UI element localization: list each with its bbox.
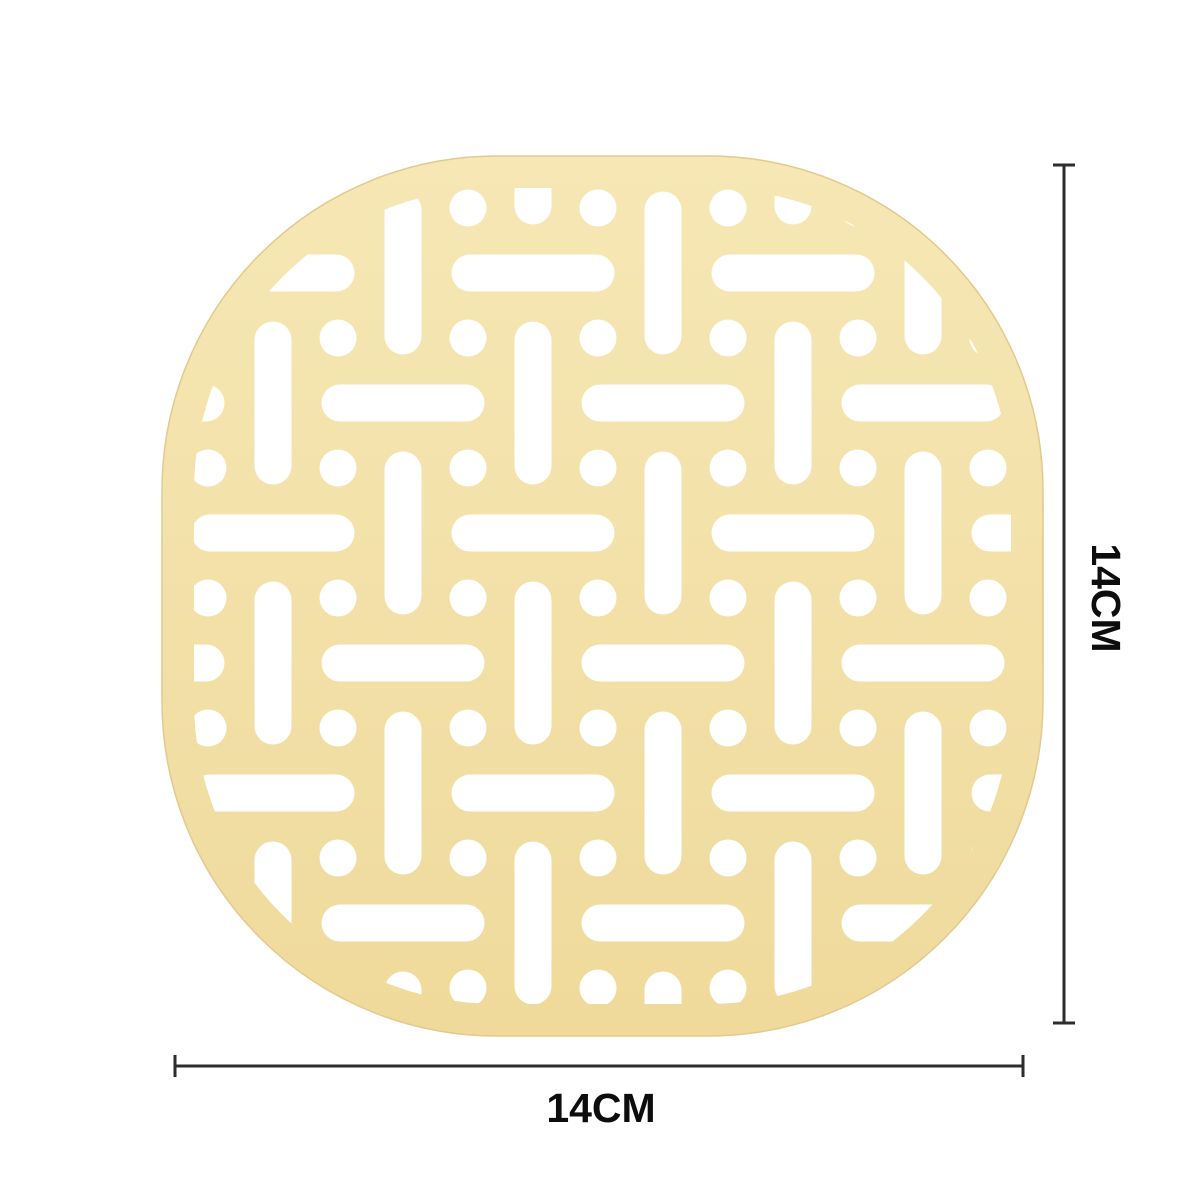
mat-hole-slot-vertical bbox=[385, 712, 422, 875]
mat-hole-circle bbox=[580, 320, 617, 357]
mat-hole-circle bbox=[970, 710, 1007, 747]
mat-hole-slot-vertical bbox=[645, 712, 682, 875]
mat-hole-slot-horizontal bbox=[322, 905, 485, 942]
mat-hole-slot-vertical bbox=[775, 322, 812, 485]
mat-hole-circle bbox=[320, 580, 357, 617]
mat-hole-circle bbox=[580, 190, 617, 227]
mat-hole-slot-horizontal bbox=[712, 515, 875, 552]
mat-hole-slot-vertical bbox=[905, 452, 942, 615]
mat-hole-circle bbox=[710, 580, 747, 617]
mat-hole-circle bbox=[710, 970, 747, 1007]
mat-hole-circle bbox=[450, 840, 487, 877]
mat-hole-circle bbox=[450, 580, 487, 617]
mat-hole-circle bbox=[580, 450, 617, 487]
mat-hole-slot-horizontal bbox=[712, 255, 875, 292]
mat-hole-slot-vertical bbox=[255, 582, 292, 745]
mat-hole-circle bbox=[450, 320, 487, 357]
mat-hole-slot-horizontal bbox=[192, 515, 355, 552]
mat-hole-circle bbox=[320, 320, 357, 357]
mat-hole-slot-vertical bbox=[255, 322, 292, 485]
mat-hole-circle bbox=[710, 710, 747, 747]
mat-hole-slot-vertical bbox=[905, 712, 942, 875]
trivet-dimension-diagram: 14CM 14CM bbox=[0, 0, 1200, 1200]
mat-hole-slot-horizontal bbox=[452, 515, 615, 552]
mat-hole-slot-horizontal bbox=[712, 775, 875, 812]
mat-hole-circle bbox=[320, 710, 357, 747]
mat-hole-slot-horizontal bbox=[452, 255, 615, 292]
mat-hole-slot-vertical bbox=[385, 192, 422, 355]
mat-hole-circle bbox=[450, 710, 487, 747]
mat-hole-slot-horizontal bbox=[582, 905, 745, 942]
mat-hole-slot-horizontal bbox=[322, 645, 485, 682]
mat-hole-circle bbox=[710, 840, 747, 877]
mat-hole-circle bbox=[840, 450, 877, 487]
mat-hole-slot-horizontal bbox=[582, 645, 745, 682]
width-dimension-label: 14CM bbox=[546, 1085, 655, 1131]
height-dimension-label: 14CM bbox=[1083, 543, 1129, 652]
mat-hole-circle bbox=[450, 970, 487, 1007]
mat-hole-slot-horizontal bbox=[842, 385, 1005, 422]
mat-hole-circle bbox=[970, 580, 1007, 617]
mat-hole-slot-vertical bbox=[645, 192, 682, 355]
mat-hole-slot-vertical bbox=[515, 322, 552, 485]
mat-hole-slot-horizontal bbox=[452, 775, 615, 812]
mat-hole-slot-vertical bbox=[775, 582, 812, 745]
mat-hole-circle bbox=[320, 450, 357, 487]
mat-hole-slot-horizontal bbox=[582, 385, 745, 422]
mat-hole-circle bbox=[840, 840, 877, 877]
mat-hole-circle bbox=[840, 710, 877, 747]
mat-hole-slot-horizontal bbox=[322, 385, 485, 422]
mat-hole-slot-horizontal bbox=[192, 775, 355, 812]
mat-hole-circle bbox=[190, 580, 227, 617]
product-dimension-image: 14CM 14CM bbox=[0, 0, 1200, 1200]
mat-hole-slot-vertical bbox=[515, 842, 552, 1005]
mat-hole-circle bbox=[840, 320, 877, 357]
mat-hole-circle bbox=[710, 190, 747, 227]
mat-hole-circle bbox=[580, 840, 617, 877]
mat-hole-circle bbox=[970, 450, 1007, 487]
mat-hole-slot-horizontal bbox=[842, 645, 1005, 682]
mat-hole-circle bbox=[450, 450, 487, 487]
mat-hole-circle bbox=[710, 450, 747, 487]
mat-hole-slot-vertical bbox=[775, 842, 812, 1005]
mat-hole-slot-vertical bbox=[515, 582, 552, 745]
mat-hole-slot-vertical bbox=[385, 452, 422, 615]
mat-hole-circle bbox=[710, 320, 747, 357]
mat-hole-circle bbox=[840, 580, 877, 617]
mat-hole-circle bbox=[450, 190, 487, 227]
mat-hole-circle bbox=[580, 580, 617, 617]
mat-hole-circle bbox=[320, 840, 357, 877]
mat-hole-slot-vertical bbox=[645, 452, 682, 615]
mat-hole-circle bbox=[580, 970, 617, 1007]
mat-hole-circle bbox=[580, 710, 617, 747]
